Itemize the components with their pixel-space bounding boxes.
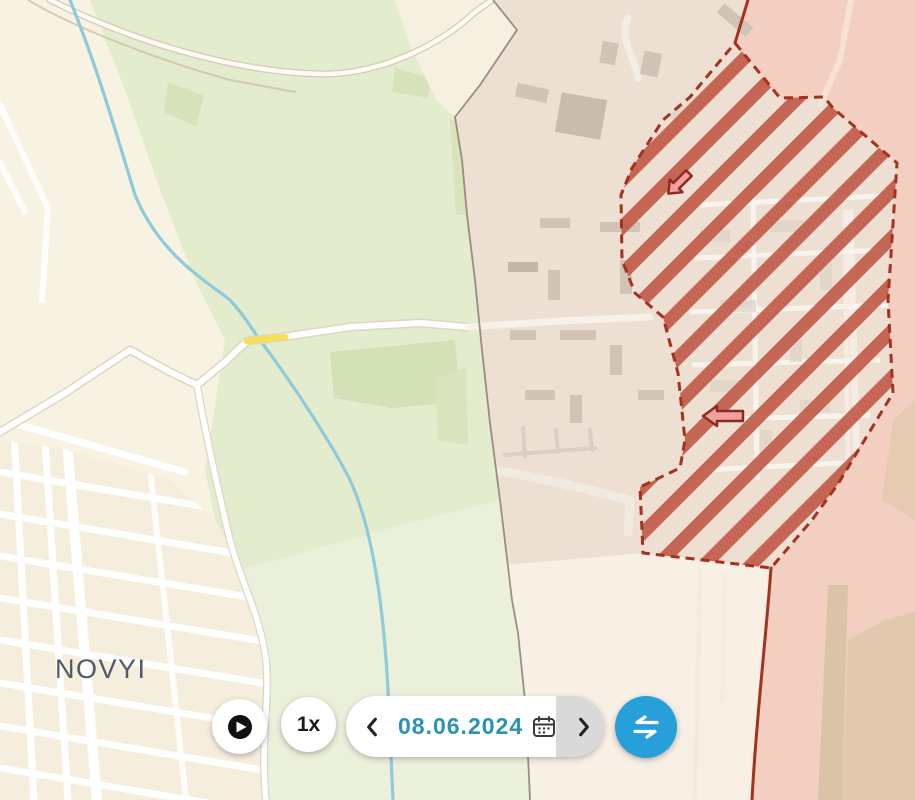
road-yellow-segment	[247, 337, 285, 341]
calendar-icon	[532, 715, 556, 739]
date-picker[interactable]: 08.06.2024	[346, 696, 604, 757]
playback-speed-button[interactable]: 1x	[281, 697, 336, 752]
date-display[interactable]: 08.06.2024	[398, 696, 556, 757]
compare-layers-button[interactable]	[615, 696, 677, 758]
speed-label: 1x	[297, 713, 320, 737]
map-canvas[interactable]: NOVYI	[0, 0, 915, 800]
play-button[interactable]	[212, 699, 267, 754]
swap-arrows-icon	[630, 711, 662, 743]
pale-buffer-zone	[505, 553, 771, 800]
date-value: 08.06.2024	[398, 713, 523, 740]
chevron-right-icon	[577, 717, 591, 737]
play-icon	[227, 714, 253, 740]
chevron-left-icon	[365, 717, 379, 737]
previous-day-button[interactable]	[346, 696, 398, 757]
map-label-novyi: NOVYI	[55, 654, 147, 684]
